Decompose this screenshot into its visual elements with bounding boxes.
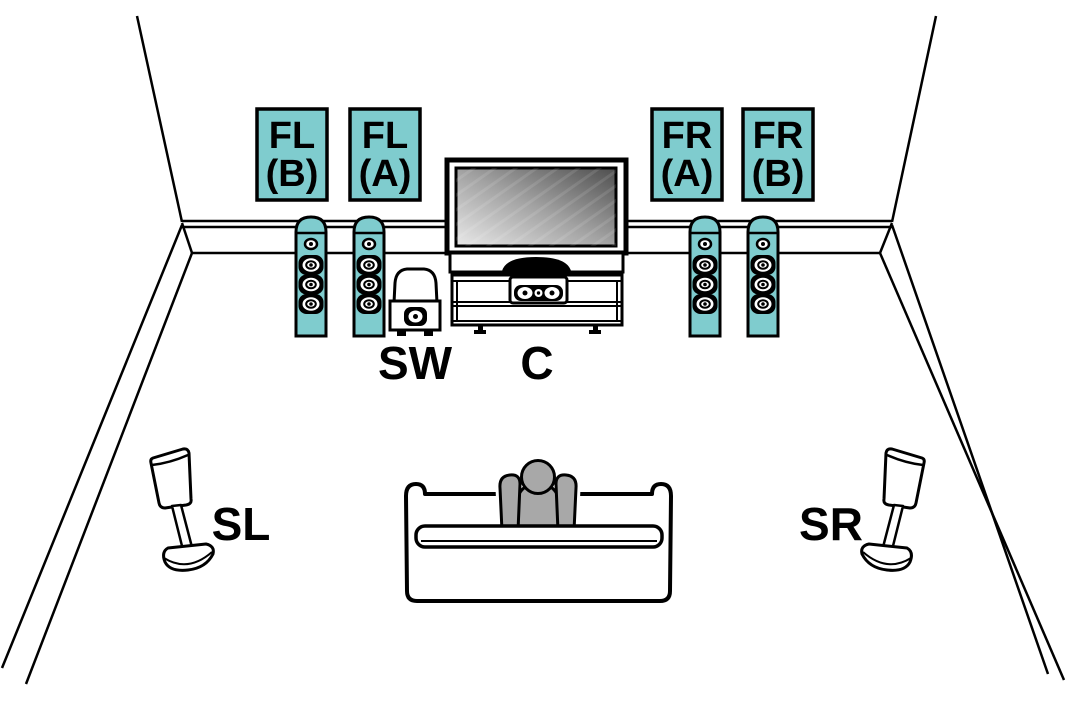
listener-right-arm — [556, 475, 576, 531]
left-floor-edge-outer — [2, 225, 182, 668]
surround-right-label: SR — [799, 498, 863, 550]
listener-left-arm — [500, 475, 520, 531]
label-box-fl-a: FL (A) — [350, 109, 420, 200]
listener-head — [522, 461, 555, 494]
tower-speaker-fr-a — [690, 217, 720, 336]
fr-a-label-line2: (A) — [661, 153, 714, 195]
surround-left-speaker — [151, 449, 214, 570]
tv-group — [447, 160, 626, 272]
av-rack-group — [452, 275, 622, 334]
sl-cabinet — [151, 449, 191, 508]
center-speaker — [510, 277, 567, 303]
left-wall-top-edge — [137, 16, 182, 222]
subwoofer-top — [394, 269, 437, 303]
surround-right-speaker — [862, 449, 925, 570]
sofa-group — [406, 461, 671, 602]
subwoofer-label: SW — [378, 337, 453, 389]
label-box-fl-b: FL (B) — [257, 109, 327, 200]
label-box-fr-a: FR (A) — [652, 109, 722, 200]
fl-a-label-line2: (A) — [359, 153, 412, 195]
fl-b-label-line2: (B) — [266, 153, 319, 195]
fl-b-label-line1: FL — [269, 115, 315, 157]
tv-screen-sheen — [456, 168, 616, 246]
subwoofer — [390, 269, 440, 336]
fr-a-label-line1: FR — [662, 115, 713, 157]
center-label: C — [520, 337, 553, 389]
fr-b-label-line2: (B) — [752, 153, 805, 195]
right-wall-top-edge — [892, 16, 936, 222]
fr-b-label-line1: FR — [753, 115, 804, 157]
fl-a-label-line1: FL — [362, 115, 408, 157]
tower-speaker-fl-b — [296, 217, 326, 336]
speaker-layout-diagram: FL (B) FL (A) FR (A) FR (B) — [0, 0, 1082, 723]
room-perspective-svg: FL (B) FL (A) FR (A) FR (B) — [0, 0, 1082, 723]
sr-cabinet — [884, 449, 924, 508]
label-box-fr-b: FR (B) — [743, 109, 813, 200]
tower-speaker-fr-b — [748, 217, 778, 336]
surround-left-label: SL — [212, 498, 271, 550]
right-floor-edge-outer — [892, 225, 1048, 674]
tower-speaker-fl-a — [354, 217, 384, 336]
sofa-backrest-bar — [416, 526, 662, 547]
